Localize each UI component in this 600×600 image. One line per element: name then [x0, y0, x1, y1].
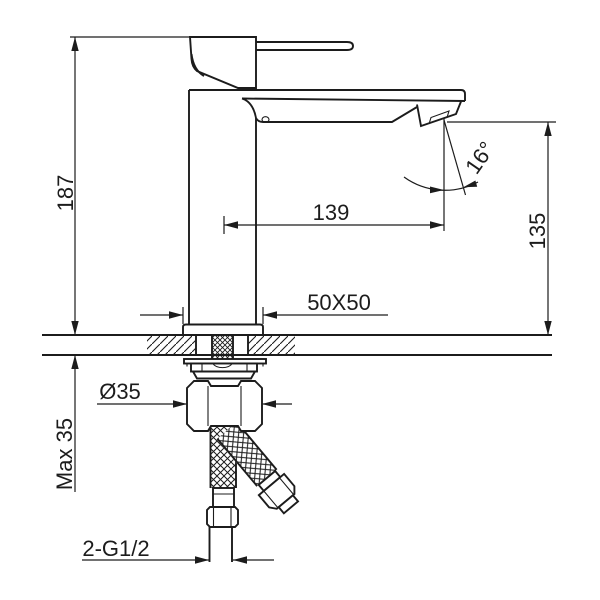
dim-16deg-tilted-line [444, 120, 466, 195]
mounting-assembly [184, 335, 303, 562]
hose-ferrule [213, 488, 234, 507]
dim-139-arrow-right [430, 221, 444, 228]
countertop-hatch-left [147, 336, 196, 354]
drawing-page: 187 Max 35 135 139 16° 50X50 [0, 0, 600, 600]
spout-band-bottom [242, 99, 465, 102]
dim-g12-label: 2-G1/2 [82, 536, 149, 561]
dim-187-arrow-bottom [71, 321, 78, 335]
spout-neck-fillet [242, 99, 256, 119]
dim-187-arrow-top [71, 37, 78, 51]
dim-d35-arrow-right [262, 400, 276, 407]
threaded-shank [212, 335, 233, 359]
dim-g12-arrow-right [233, 556, 247, 563]
hose-hex-fitting [207, 507, 238, 527]
dim-g12-arrow-left [195, 556, 209, 563]
spout-underside [256, 107, 417, 122]
dim-d35-arrow-left [173, 400, 187, 407]
dim-max35-label: Max 35 [52, 418, 77, 490]
dim-5050-label: 50X50 [307, 290, 371, 315]
dim-5050-extension-ticks [183, 307, 263, 324]
gasket-lower-ring [193, 372, 255, 379]
dim-16deg-arrow-left [430, 187, 444, 194]
dimension-annotations: 187 Max 35 135 139 16° 50X50 [52, 37, 556, 564]
technical-drawing-canvas: 187 Max 35 135 139 16° 50X50 [0, 0, 600, 600]
dim-5050-arrow-right [263, 311, 277, 318]
dim-135-arrow-bottom [544, 321, 551, 335]
faucet-handle-body [190, 37, 256, 88]
countertop-hatch-right [248, 336, 295, 354]
dim-16deg-arc [404, 177, 478, 190]
dim-16deg-label: 16° [460, 137, 500, 179]
mounting-nut [187, 381, 262, 431]
dim-135-arrow-top [544, 122, 551, 136]
dim-max35-arrow [71, 355, 78, 369]
base-plate [183, 325, 263, 336]
dim-135-label: 135 [525, 213, 550, 250]
dim-16deg-arrow-right [463, 181, 477, 188]
dim-139-label: 139 [313, 200, 350, 225]
dim-d35-label: Ø35 [99, 379, 141, 404]
countertop [42, 335, 552, 355]
dim-187-label: 187 [53, 175, 78, 212]
connection-tube [210, 527, 233, 562]
faucet-lever [256, 42, 353, 50]
dim-139-arrow-left [224, 221, 238, 228]
dim-5050-arrow-left [169, 311, 183, 318]
